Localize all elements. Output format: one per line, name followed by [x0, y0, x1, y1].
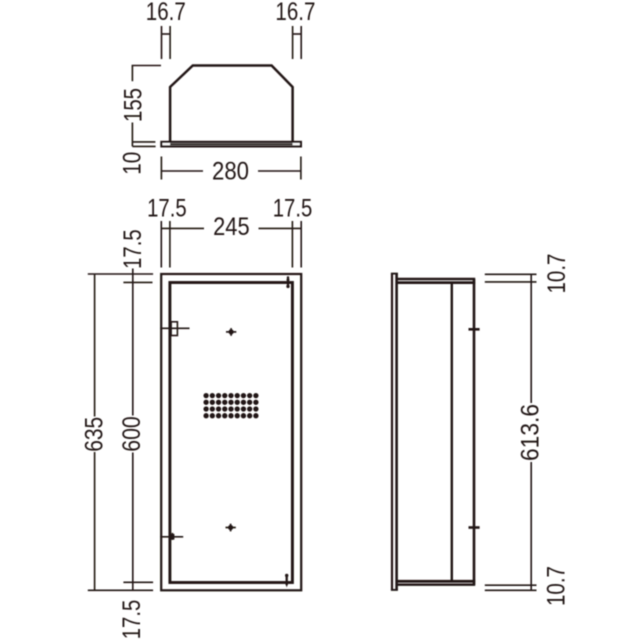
svg-text:600: 600: [118, 416, 146, 452]
svg-text:17.5: 17.5: [147, 194, 187, 222]
svg-text:17.5: 17.5: [119, 229, 147, 269]
svg-text:10: 10: [118, 152, 146, 175]
svg-text:17.5: 17.5: [118, 600, 146, 640]
svg-text:635: 635: [81, 417, 109, 452]
svg-text:245: 245: [213, 213, 250, 241]
svg-text:613.6: 613.6: [516, 404, 544, 461]
svg-text:16.7: 16.7: [275, 0, 315, 26]
svg-text:155: 155: [119, 88, 147, 122]
svg-text:10.7: 10.7: [543, 566, 571, 606]
svg-text:280: 280: [212, 157, 249, 185]
svg-text:17.5: 17.5: [273, 194, 313, 222]
svg-text:16.7: 16.7: [146, 0, 186, 26]
svg-text:10.7: 10.7: [543, 254, 571, 294]
